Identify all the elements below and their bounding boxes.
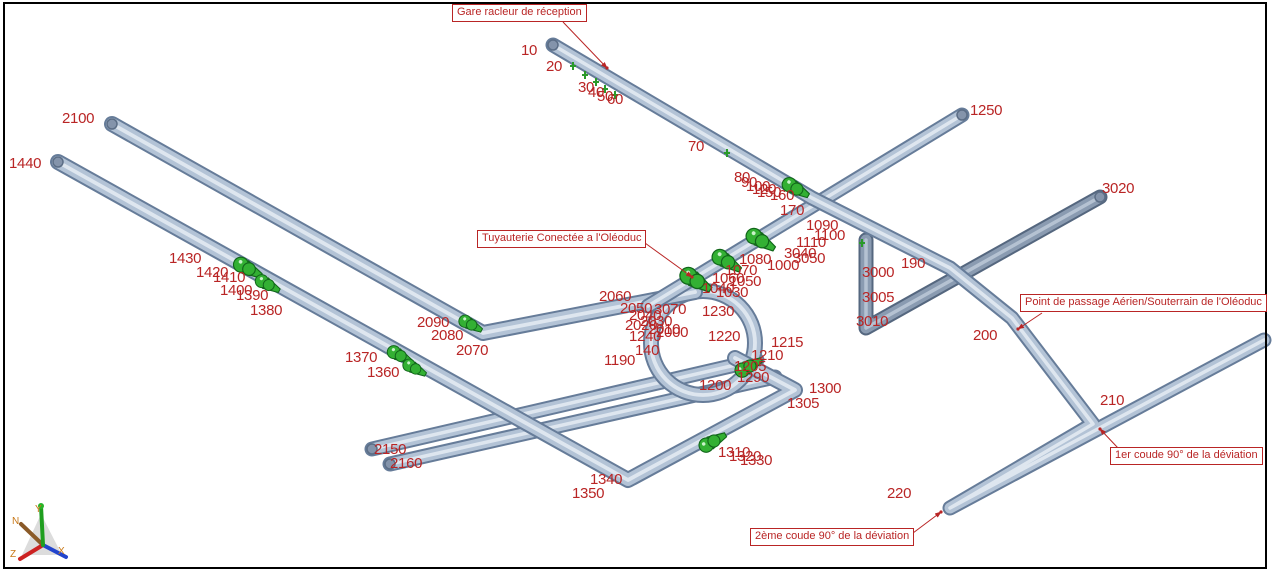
axis-label-z: Z <box>10 549 16 560</box>
axis-triad: NYZX <box>10 503 66 560</box>
callout-leader-line <box>645 243 692 277</box>
pipe-end-cap <box>957 110 967 120</box>
axis-label-x: X <box>58 546 65 557</box>
pipe-segment[interactable] <box>866 197 1100 328</box>
callout-leader-dot <box>939 510 942 513</box>
pipe-end-cap <box>548 40 558 50</box>
pipe-end-cap <box>367 444 377 454</box>
pipe-end-cap <box>1095 192 1105 202</box>
support-marker[interactable] <box>612 91 618 99</box>
callout-leader-line <box>1100 429 1118 448</box>
callout-leader-line <box>909 512 941 536</box>
pipe-end-cap <box>107 119 117 129</box>
axis-label-y: Y <box>35 504 42 515</box>
pipe-end-cap <box>53 157 63 167</box>
callout-leader-dot <box>1016 327 1019 330</box>
pipe-segment[interactable] <box>112 124 695 333</box>
callout-leader-dot <box>1098 427 1101 430</box>
pipe-end-cap <box>385 459 395 469</box>
callout-leader-dot <box>605 66 608 69</box>
support-marker[interactable] <box>602 85 608 93</box>
axis-label-n: N <box>12 516 19 527</box>
callout-leader-dot <box>690 275 693 278</box>
pipe-segment[interactable] <box>553 45 1264 508</box>
piping-model-canvas[interactable]: NYZX <box>0 0 1272 581</box>
cad-viewport[interactable]: NYZX 10203040506070809010012015016017010… <box>0 0 1272 581</box>
